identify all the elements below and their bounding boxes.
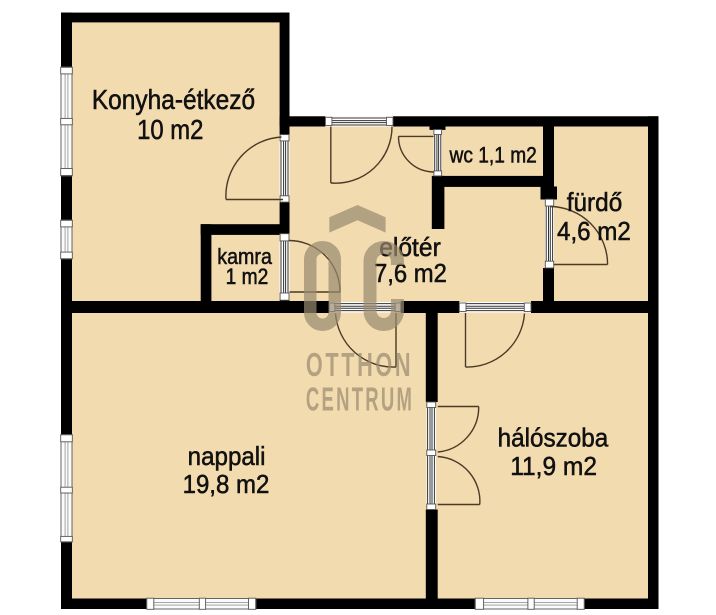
svg-text:OTTHON: OTTHON [306,346,413,383]
svg-text:10 m2: 10 m2 [137,114,203,145]
svg-text:1 m2: 1 m2 [226,264,269,289]
svg-text:wc 1,1 m2: wc 1,1 m2 [449,142,537,167]
svg-text:11,9 m2: 11,9 m2 [510,451,597,481]
svg-text:CENTRUM: CENTRUM [306,381,414,418]
svg-text:4,6 m2: 4,6 m2 [557,216,631,246]
svg-text:fürdő: fürdő [567,187,623,217]
svg-text:nappali: nappali [188,441,266,471]
svg-text:Konyha-étkező: Konyha-étkező [92,84,255,115]
svg-text:hálószoba: hálószoba [498,423,609,453]
svg-text:7,6 m2: 7,6 m2 [374,258,447,288]
svg-text:19,8 m2: 19,8 m2 [183,469,270,499]
